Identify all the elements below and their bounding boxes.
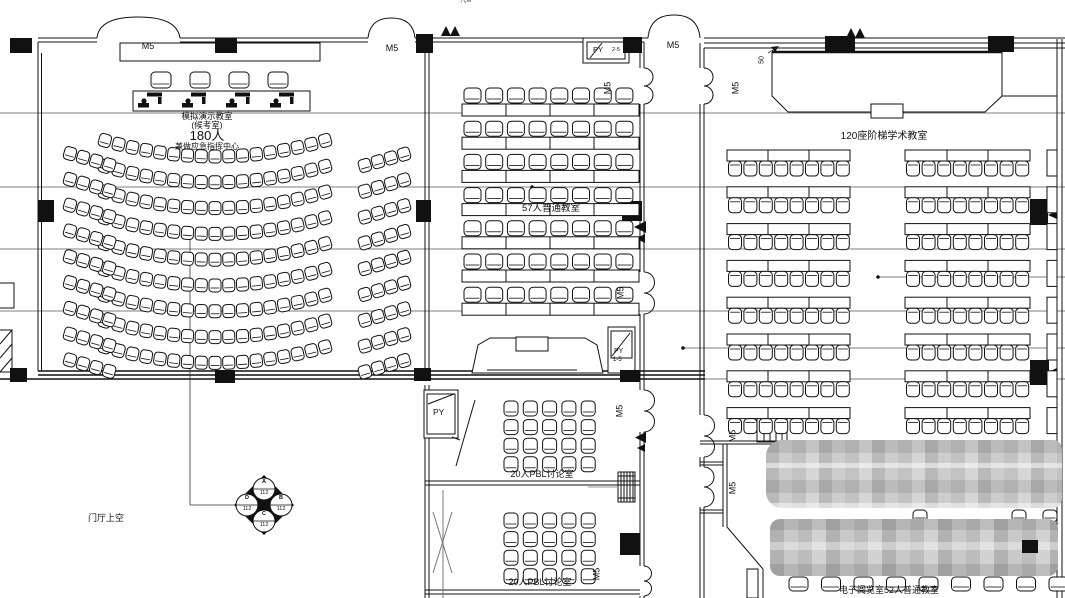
m5-door-label-7: M5 xyxy=(616,405,625,418)
py-left-label: PY xyxy=(433,408,444,417)
elev-value-d: 112 xyxy=(243,507,252,513)
m5-door-label-6: M5 xyxy=(617,287,626,300)
privacy-blur-region-upper xyxy=(766,440,1062,508)
dim-50-label: 50 xyxy=(759,56,766,64)
blurred-dark-object xyxy=(1022,540,1038,553)
floorplan-canvas: 模拟演示教室 (候考室) 180人 兼做应急指挥中心 57人普通教室 120座阶… xyxy=(0,0,1065,598)
elev-value-b: 112 xyxy=(277,507,286,513)
py-mid-label: PY xyxy=(614,348,623,355)
left-edge-hatch xyxy=(0,330,12,372)
pbl-room-1-label: 20人PBL讨论室 xyxy=(510,470,573,479)
floor-plan-drawing xyxy=(0,0,1065,598)
m5-door-label-10: M5 xyxy=(593,568,602,581)
m5-door-label-4: M5 xyxy=(604,82,613,95)
classroom-57-label: 57人普通教室 xyxy=(522,204,580,214)
elev-letter-c: C xyxy=(262,512,266,518)
pbl-room-2-label: 20人PBL讨论室 xyxy=(508,578,571,587)
m5-door-label-2: M5 xyxy=(386,44,399,53)
classroom-120-label: 120座阶梯学术教室 xyxy=(841,132,928,142)
pbl2-cross-wall xyxy=(433,490,452,598)
left-edge-niche xyxy=(0,283,14,308)
py-mid-range: 1-5 xyxy=(613,357,622,363)
elev-value-c: 112 xyxy=(260,523,269,529)
elev-letter-d: D xyxy=(245,496,249,502)
elev-letter-a: A xyxy=(262,480,266,486)
m5-door-label-9: M5 xyxy=(729,482,738,495)
lectern-120 xyxy=(871,104,903,118)
m5-door-label-5: M5 xyxy=(732,82,741,95)
m5-door-label-3: M5 xyxy=(667,41,680,50)
privacy-blur-region-lower xyxy=(770,519,1058,576)
m5-door-label-1: M5 xyxy=(142,42,155,51)
hall-room-label-line4: 兼做应急指挥中心 xyxy=(175,143,239,151)
elev-value-a: 112 xyxy=(260,491,269,497)
elev-letter-b: B xyxy=(279,496,283,502)
py-top-range: 2-5 xyxy=(612,48,620,54)
wall-triangles xyxy=(441,26,865,38)
stage-120 xyxy=(772,52,1057,112)
hall-room-label-line3: 180人 xyxy=(190,129,225,142)
reading-room-label: 电子阅览室52人普通教室 xyxy=(839,586,939,595)
py-top-label: PY xyxy=(593,46,603,54)
lectern-57 xyxy=(516,337,548,351)
foyer-void-label: 门厅上空 xyxy=(88,514,124,523)
top-edge-partial-text: 凡M xyxy=(461,0,472,4)
m5-door-label-8: M5 xyxy=(729,430,738,443)
